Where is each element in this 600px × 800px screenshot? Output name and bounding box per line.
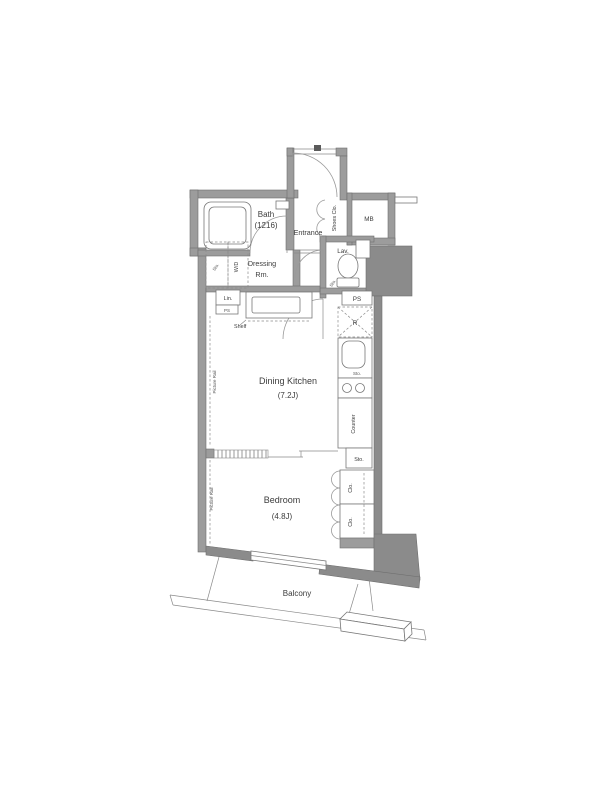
shoes-closet-label: Shoes Clo. <box>332 205 338 231</box>
bath-size-label: (1216) <box>254 221 277 230</box>
mb-pipe <box>395 197 417 203</box>
entrance-label: Entrance <box>294 228 323 237</box>
linen-label: Lin. <box>224 296 233 302</box>
duct-box <box>356 240 370 258</box>
pipe-space-small-label: PS <box>224 308 230 313</box>
dressing-room-label2: Rm. <box>255 270 268 279</box>
dark-block-upper <box>366 246 412 296</box>
floor-plan: Bath (1216) Entrance Shoes Clo. MB Lav. … <box>0 0 600 800</box>
closet-1 <box>340 470 374 504</box>
dining-kitchen-size-label: (7.2J) <box>278 391 299 400</box>
meter-box-label: MB <box>364 216 373 223</box>
bedroom-label: Bedroom <box>264 495 301 505</box>
closet-2 <box>340 504 374 538</box>
vanity <box>246 292 312 318</box>
dressing-room-label: Dressing <box>248 259 276 268</box>
closet-2-label: Clo. <box>348 517 354 527</box>
background <box>0 0 600 800</box>
lavatory-fixtures <box>337 254 359 287</box>
counter-label: Counter <box>351 414 357 433</box>
washer-dryer-label: W/D <box>234 262 240 273</box>
refrigerator-label: R <box>353 320 358 327</box>
sink-storage-label: Sto. <box>353 371 361 376</box>
bath-shelf-box <box>276 201 289 209</box>
shelf-label: Shelf <box>234 324 247 330</box>
door-hinge-mark <box>314 145 321 151</box>
lavatory-label: Lav. <box>337 248 349 255</box>
dining-kitchen-label: Dining Kitchen <box>259 376 317 386</box>
right-wall-strip <box>374 296 382 538</box>
closet-1-label: Clo. <box>348 483 354 493</box>
bedroom-closets <box>340 470 374 538</box>
bath-label: Bath <box>258 210 274 219</box>
floor-plan-page: Bath (1216) Entrance Shoes Clo. MB Lav. … <box>0 0 600 800</box>
picture-rail-label-bedroom: Picture Rail <box>209 487 214 510</box>
toilet-tank <box>337 278 359 287</box>
toilet-icon <box>338 254 358 278</box>
picture-rail-label-dk: Picture Rail <box>212 370 217 393</box>
storage-box-label: Sto. <box>354 457 364 463</box>
bedroom-size-label: (4.8J) <box>272 512 293 521</box>
balcony-label: Balcony <box>283 589 311 598</box>
pipe-space-label: PS <box>353 296 361 303</box>
stove-unit <box>338 378 372 398</box>
